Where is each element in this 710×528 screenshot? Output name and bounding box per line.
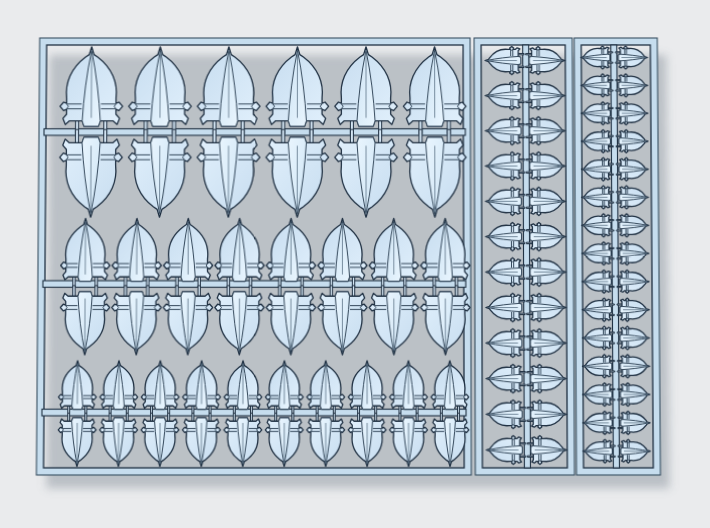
page-background: { "scene": { "description": "3D render o… <box>0 0 710 528</box>
product-render <box>0 0 710 528</box>
runner-middle-row <box>43 281 466 288</box>
runner-bottom-row <box>42 409 466 416</box>
shield-sprue-svg <box>0 0 710 528</box>
runner-strip-1 <box>523 45 531 468</box>
